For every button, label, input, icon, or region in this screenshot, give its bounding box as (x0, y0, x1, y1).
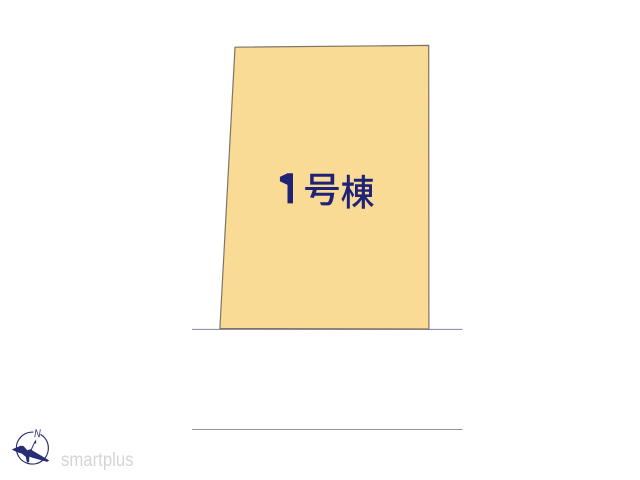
svg-text:smartplus: smartplus (61, 450, 134, 471)
